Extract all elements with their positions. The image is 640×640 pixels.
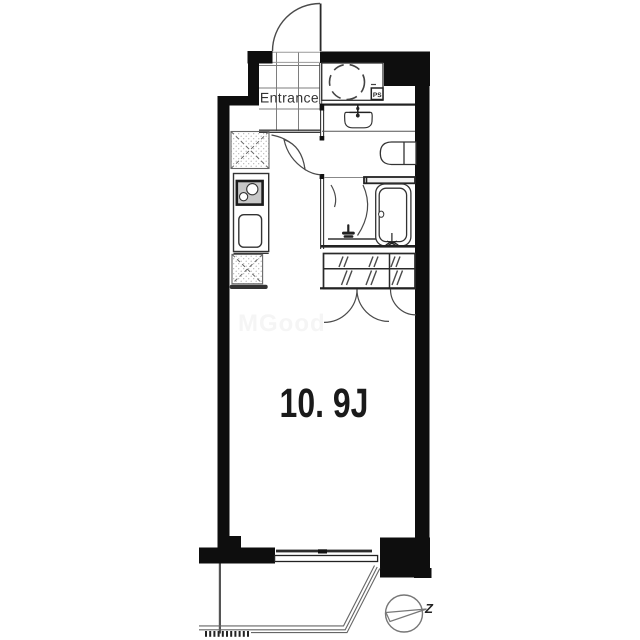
svg-text:10. 9J: 10. 9J <box>280 380 369 426</box>
svg-text:MGood: MGood <box>238 310 326 337</box>
svg-text:Entrance: Entrance <box>260 90 319 106</box>
svg-text:PS: PS <box>373 92 382 99</box>
svg-text:Z: Z <box>424 601 434 616</box>
